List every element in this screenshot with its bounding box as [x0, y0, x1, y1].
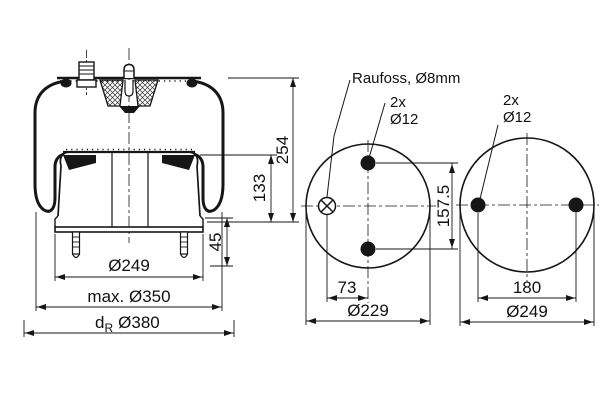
dim-180: 180	[513, 278, 541, 297]
dim-157-5: 157.5	[434, 185, 453, 228]
air-fitting	[77, 50, 96, 95]
air-port-symbol	[319, 198, 336, 215]
middle-holes-count: 2x	[390, 94, 406, 111]
air-spring-drawing: 45 133 254 Ø249 max. Ø350 dRØ380	[0, 0, 600, 400]
dim-dia-rim-380: dRØ380	[95, 313, 160, 335]
technical-drawing-page: 45 133 254 Ø249 max. Ø350 dRØ380	[0, 0, 600, 400]
right-holes-count: 2x	[503, 92, 519, 109]
middle-arrowheads	[307, 164, 455, 324]
middle-holes-leader	[369, 103, 385, 158]
dim-dia-max-350: max. Ø350	[87, 287, 170, 306]
raufoss-leader	[327, 80, 350, 197]
stud-hole-top	[361, 156, 376, 171]
dim-dia-229: Ø229	[347, 301, 389, 320]
bellows-right	[192, 81, 223, 211]
bellows-left	[35, 81, 66, 211]
mounting-stud-right	[181, 232, 188, 258]
dim-133: 133	[250, 174, 269, 202]
top-stud	[124, 65, 134, 79]
base-plate	[55, 227, 203, 232]
rubber-bumper	[100, 80, 158, 113]
dim-dia-249: Ø249	[108, 256, 150, 275]
middle-holes-dia: Ø12	[390, 111, 418, 128]
dim-dia-249-right: Ø249	[506, 302, 548, 321]
dim-45: 45	[206, 233, 225, 252]
dim-73: 73	[338, 278, 357, 297]
right-holes-dia: Ø12	[503, 109, 531, 126]
stud-hole-right	[569, 198, 584, 213]
bumper-pad	[119, 106, 140, 113]
stud-hole-left	[471, 198, 486, 213]
dim-254: 254	[273, 136, 292, 164]
mounting-stud-left	[73, 232, 80, 258]
raufoss-label: Raufoss, Ø8mm	[352, 70, 460, 87]
stud-hole-bottom	[361, 242, 376, 257]
right-holes-leader	[480, 125, 498, 199]
